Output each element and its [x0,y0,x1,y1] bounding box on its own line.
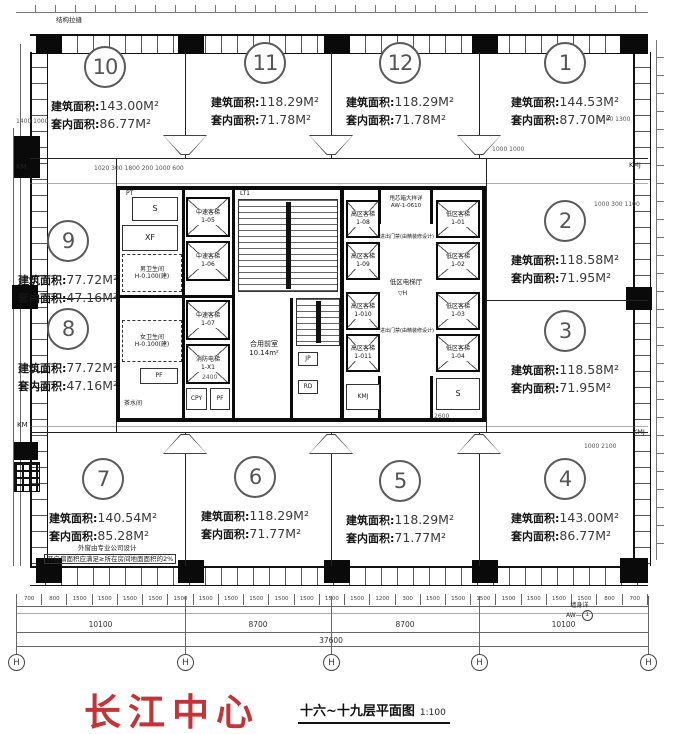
lobby-label: 低区电梯厅 [382,278,430,286]
total-dim: 37600 [250,636,412,645]
column [620,558,648,583]
kmj-label-right: KMJ [629,161,641,169]
entrance-mark [309,135,353,155]
dim-segment: 1500 [446,594,471,605]
core-wall [232,190,235,418]
unit-4: 4 建筑面积:143.00M² 套内面积:86.77M² [490,458,640,545]
core-wall [182,190,185,418]
core-wall [430,376,433,418]
dim-segment: 1500 [168,594,193,605]
dim-segment: 1500 [244,594,269,605]
elevator-1-05: 中速客梯1-05 [186,197,230,237]
wall-detail-note: 墙身详 AW—1 [566,602,593,621]
dim-segment: 1500 [143,594,168,605]
unit-5: 5 建筑面积:118.29M² 套内面积:71.77M² [325,460,475,547]
dim-segment: 300 [396,594,421,605]
km-label-top: KM [16,163,27,172]
axis-line [648,596,649,654]
unit-number-badge: 3 [544,310,586,352]
major-dim: 10100 [479,620,648,629]
window-note-1: 外窗由专业公司设计 [78,544,137,552]
dim-segment: 1500 [67,594,92,605]
dim-segment: 1500 [320,594,345,605]
corridor-line [30,183,648,184]
entrance-mark [309,434,353,454]
unit-10: 10 建筑面积:143.00M² 套内面积:86.77M² [25,46,185,133]
structure-joint-note: 结构拉缝 [56,16,82,24]
dim-text: 1400 1000 [16,118,48,125]
entrance-mark [163,135,207,155]
floor-plan-page: 结构拉缝 10 建筑面积:143.00M² 套内面积:86.77M² [0,0,674,734]
dim-segment: 1500 [471,594,496,605]
top-tick-strip [16,5,648,13]
column [626,287,652,310]
dim-segment: 1500 [345,594,370,605]
room-s2: S [436,378,480,410]
room-xf: XF [122,225,178,251]
stair-label: LT1 [240,190,250,198]
window-note-2: 开启扇面积应满足≥所在房间地面面积的2% [44,554,176,564]
room-pf2: PF [210,388,230,410]
shared-front-room: 合用前室 10.14m² [238,298,290,398]
km-label-mid: KM [17,421,28,430]
service-core: PT S XF 男卫生间 H-0.100(建) 女卫生间 H-0.100(建) … [116,186,486,422]
unit-number-badge: 11 [244,42,286,84]
unit-6: 6 建筑面积:118.29M² 套内面积:71.77M² [180,456,330,543]
entrance-mark [457,434,501,454]
dim-segment: 1500 [421,594,446,605]
elevator-1-06: 中速客梯1-06 [186,241,230,281]
level-mark: ▽H [398,290,407,298]
column [472,560,498,583]
room-s: S [132,197,178,221]
unit-number-badge: 2 [544,200,586,242]
dim-segment: 1500 [522,594,547,605]
column [324,560,350,583]
unit-number-badge: 9 [47,220,89,262]
unit-number-badge: 1 [544,42,586,84]
elevator-1-01: 低区客梯1-01 [436,200,480,238]
dim-line [16,646,648,647]
wall-line [486,158,487,432]
core-wall [120,295,235,298]
dim-line [16,606,648,607]
wall-line [486,300,648,301]
unit-12: 12 建筑面积:118.29M² 套内面积:71.78M² [320,42,480,129]
axis-bubble: H [471,654,488,671]
room-pf: PF [140,368,178,384]
dim-line [16,632,648,633]
tea-room-label: 茶水间 [124,400,142,408]
small-dimension-row: 7008001500150015001500150015001500150015… [16,594,648,605]
elevator-1-010: 高区客梯1-010 [346,292,380,330]
male-restroom: 男卫生间 H-0.100(建) [122,254,182,292]
dim-segment: 800 [597,594,622,605]
dim-text: 1000 2100 [584,443,616,450]
kmj-label-bottom: KMJ [633,428,645,436]
dim-segment: 700 [16,594,42,605]
major-dim: 10100 [16,620,185,629]
dim-text: 2600 [434,413,449,420]
staircase-2 [296,298,340,346]
dim-segment: 1500 [219,594,244,605]
dim-segment: 800 [42,594,67,605]
female-restroom: 女卫生间 H-0.100(建) [122,320,182,362]
dim-line [16,613,648,614]
dim-segment: 1500 [93,594,118,605]
unit-3: 3 建筑面积:118.58M² 套内面积:71.95M² [505,310,625,397]
staircase-1 [238,199,338,292]
wall-line [30,158,648,159]
right-tick-strip [656,40,664,560]
column [178,560,204,583]
dim-segment: 1200 [370,594,395,605]
unit-number-badge: 12 [379,42,421,84]
dim-segment: 700 [623,594,648,605]
unit-9: 9 建筑面积:77.72M² 套内面积:47.16M² [13,220,123,307]
drawing-title: 十六~十九层平面图1:100 [298,700,450,724]
core-wall [290,298,293,418]
wall-line [30,432,648,433]
elevator-1-08: 高区客梯1-08 [346,200,380,238]
dim-text: 1000 1000 [492,146,524,153]
dim-text: 1100 1300 [598,116,630,123]
elevator-1-011: 高区客梯1-011 [346,334,380,372]
core-box-note: 甩芯箱大样详 AW-1-0610 [380,196,432,210]
dim-segment: 1500 [496,594,521,605]
axis-bubble: H [177,654,194,671]
access-note-2: 进出门禁(由精装修设计) [380,328,432,334]
major-dim: 8700 [331,620,479,629]
unit-8: 8 建筑面积:77.72M² 套内面积:47.16M² [13,308,123,395]
entrance-mark [163,434,207,454]
room-jp: JP [298,352,318,366]
dim-segment: 1500 [194,594,219,605]
unit-number-badge: 6 [234,456,276,498]
project-brand: 长江中心 [84,682,260,734]
dim-text: 2400 [202,374,217,381]
corridor-line [30,426,648,427]
unit-number-badge: 10 [84,46,126,88]
elevator-1-04: 低区客梯1-04 [436,334,480,372]
dim-text: 1020 300 1800 200 1000 600 [94,165,184,172]
detail-ref-bubble: 1 [582,610,593,621]
elevator-1-09: 高区客梯1-09 [346,242,380,280]
dim-segment: 1500 [295,594,320,605]
unit-number-badge: 7 [82,458,124,500]
major-dim: 8700 [185,620,331,629]
dim-segment: 1500 [269,594,294,605]
core-wall [340,190,344,418]
dim-segment: 1500 [118,594,143,605]
axis-bubble: H [323,654,340,671]
elevator-1-03: 低区客梯1-03 [436,292,480,330]
elevator-1-02: 低区客梯1-02 [436,242,480,280]
axis-bubble: H [640,654,657,671]
elevator-1-07: 中速客梯1-07 [186,300,230,340]
unit-number-badge: 4 [544,458,586,500]
room-rd: RD [298,380,318,394]
unit-7: 7 建筑面积:140.54M² 套内面积:85.28M² [28,458,178,545]
unit-number-badge: 8 [47,308,89,350]
room-cpy: CPY [186,388,207,410]
axis-bubble: H [8,654,25,671]
dim-text: 1000 300 1100 [594,201,640,208]
unit-2: 2 建筑面积:118.58M² 套内面积:71.95M² [505,200,625,287]
unit-number-badge: 5 [379,460,421,502]
access-note-1: 进出门禁(由精装修设计) [380,234,432,240]
room-kmj: KMJ [346,384,380,410]
